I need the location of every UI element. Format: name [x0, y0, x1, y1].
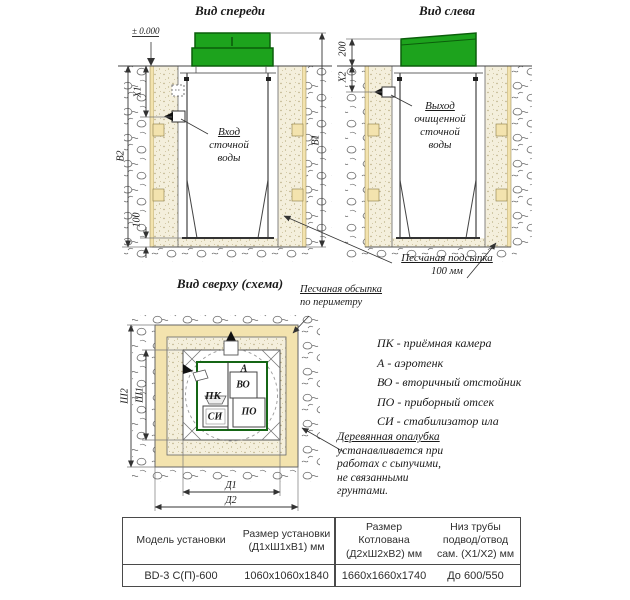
left-bedding: [392, 238, 485, 247]
spec-table: Модель установки Размер установки (Д1хШ1…: [122, 517, 521, 587]
front-plank-left: [150, 66, 154, 247]
legend-item: ПК - приёмная камера: [377, 334, 521, 354]
bedding-note: Песчаная подсыпка 100 мм: [383, 252, 511, 278]
dim-100-label: 100: [132, 213, 143, 228]
outlet-label: Выход очищенной сточной воды: [406, 100, 474, 152]
compartment-po-label: ПО: [242, 407, 257, 418]
outlet-pipe: [382, 87, 395, 97]
front-ground-right: [306, 66, 332, 247]
dim-b2-label: В2: [116, 150, 127, 161]
front-view-title: Вид спереди: [160, 3, 300, 19]
front-bedding: [178, 238, 278, 247]
spec-table-header-row: Модель установки Размер установки (Д1хШ1…: [123, 518, 520, 565]
front-ground-bottom: [124, 247, 316, 262]
front-lid-base: [192, 48, 273, 66]
dim-x2-label: X2: [338, 71, 349, 82]
inlet-label: Вход сточной воды: [196, 126, 262, 165]
cell-unit-size: 1060х1060х1840: [239, 565, 334, 586]
legend-item: ПО - приборный отсек: [377, 393, 521, 413]
compartment-si-label: СИ: [208, 412, 222, 423]
installation-drawing-page: Вид спереди Вид слева ± 0.000 В2 X1 100 …: [0, 0, 630, 600]
formwork-note: Деревянная опалубка устанавливается при …: [337, 431, 443, 499]
compartment-vo-label: ВО: [236, 380, 249, 391]
front-sand-right: [278, 66, 302, 247]
top-view-title: Вид сверху (схема): [155, 276, 305, 292]
compartment-a-label: А: [241, 364, 248, 375]
zero-level-label: ± 0.000: [132, 26, 159, 37]
cell-model: BD-3 С(П)-600: [123, 565, 239, 586]
dim-l1-label: Д1: [225, 480, 236, 491]
compartment-pk-label: ПК: [205, 390, 221, 402]
legend-item: А - аэротенк: [377, 354, 521, 374]
dim-w1-label: Ш1: [135, 387, 146, 402]
zero-level-arrow-icon: [147, 58, 155, 66]
header-unit-size: Размер установки (Д1хШ1хВ1) мм: [239, 518, 334, 564]
header-pit-size: Размер Котлована (Д2хШ2хВ2) мм: [334, 518, 432, 564]
left-view-title: Вид слева: [387, 3, 507, 19]
left-lid: [401, 33, 476, 66]
front-plank-right: [302, 66, 306, 247]
dim-w2-label: Ш2: [120, 388, 131, 403]
dim-x1-label: X1: [133, 86, 144, 97]
dim-b1-label: В1: [311, 134, 322, 145]
header-model: Модель установки: [123, 518, 239, 564]
dim-l2-label: Д2: [225, 495, 236, 506]
legend-item: СИ - стабилизатор ила: [377, 412, 521, 432]
header-pipe-bottom: Низ трубы подвод/отвод сам. (Х1/Х2) мм: [432, 518, 519, 564]
backfill-note: Песчаная обсыпка по периметру: [300, 284, 382, 309]
legend: ПК - приёмная камера А - аэротенк ВО - в…: [377, 334, 521, 432]
inlet-pipe-dashed: [172, 85, 184, 96]
cell-pit-size: 1660х1660х1740: [334, 565, 432, 586]
legend-item: ВО - вторичный отстойник: [377, 373, 521, 393]
spec-table-data-row: BD-3 С(П)-600 1060х1060х1840 1660х1660х1…: [123, 565, 520, 586]
cell-pipe-bottom: До 600/550: [432, 565, 519, 586]
dim-200-label: 200: [338, 42, 349, 57]
